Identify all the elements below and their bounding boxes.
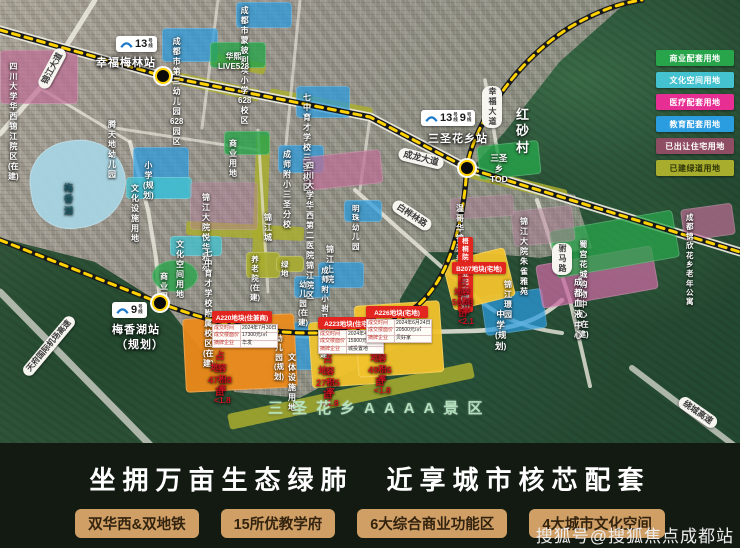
card-a226-row: 摘牌企业贝好家 — [367, 335, 432, 343]
card-b207: B207地块(宅地) — [452, 262, 506, 274]
card-a226-row: 贝好家 — [395, 335, 432, 343]
no3-kindergarten-628: 成都市第三幼儿园 628园区 — [170, 37, 183, 147]
card-a220-row: 摘牌企业华发 — [213, 340, 278, 348]
road-xingfu-avenue: 幸福大道 — [482, 86, 502, 128]
station-sanshenghuaxiang-line-number: 9号线 — [460, 112, 472, 124]
station-sanshenghuaxiang-line-number: 号线 — [467, 113, 472, 122]
card-a220-header: A220地块(住兼商) — [212, 311, 272, 323]
station-xingfumeilin-name: 幸福梅林站 — [96, 54, 156, 70]
station-meixianghu-line-number: 号线 — [138, 305, 143, 314]
station-xingfumeilin-line-badge: 13号线 — [116, 36, 157, 52]
promo-map-image: 四川大学华西 锦江院区(在建)成都市第三幼儿园 628园区成都市蒙彼利埃小学 6… — [0, 0, 740, 548]
chengshifuxiao-sansheng: 成师附小 三圣分校 — [283, 150, 291, 230]
station-xingfumeilin-line-number: 号线 — [148, 39, 153, 48]
a220-far-text: 容积率<1.8 — [214, 363, 231, 406]
card-a226-row: 成交楼面价20500元/㎡ — [367, 327, 432, 335]
card-a220-row: 摘牌企业 — [213, 340, 241, 348]
station-sanshenghuaxiang-line-number: 号线 — [453, 113, 458, 122]
card-a220-row: 成交楼面价17300元/㎡ — [213, 332, 278, 340]
station-meixianghu-name: 梅香湖站 — [112, 321, 160, 337]
card-a223-row: 城投置地 — [347, 346, 384, 354]
station-xingfumeilin-line-number: 13 — [135, 38, 147, 50]
station-sanshenghuaxiang-line-badge: 13号线9号线 — [421, 110, 475, 126]
jinxin-elderly-apartment: 成都锦欣花乡 老年公寓 — [686, 213, 694, 307]
station-sanshenghuaxiang-line-number: 13 — [440, 112, 452, 124]
huaxi-live528: 华熙LIVE528 — [218, 52, 249, 72]
jinjiang-city: 锦江城 — [264, 213, 272, 243]
metro-logo-icon — [120, 39, 133, 49]
jinjiang-dayuan-zhuque: 锦江大院 朱雀雅苑 — [520, 217, 528, 297]
a226-far-text: 容积率<1.8 — [374, 353, 391, 396]
card-a220: A220地块(住兼商)成交时间2024年7月30日成交楼面价17300元/㎡摘牌… — [212, 311, 272, 348]
scenic-area-watermark: 三圣花乡AAAA景区 — [268, 397, 491, 418]
middle-school-planned: 中学(规划) — [495, 309, 506, 352]
green-space: 绿地 — [281, 260, 289, 279]
sohu-watermark: 搜狐号@搜狐焦点成都站 — [536, 522, 734, 547]
culture-space-land: 文化空间用地 — [176, 240, 184, 300]
map-legend: 商业配套用地文化空间用地医疗配套用地教育配套用地已出让住宅用地已建绿道用地 — [654, 50, 736, 182]
station-meixianghu-line-badge: 9号线 — [112, 302, 147, 318]
cultural-facility-land: 文化设施用地 — [131, 184, 139, 244]
station-meixianghu-line-number: 9号线 — [131, 304, 143, 316]
station-sanshenghuaxiang-line-number: 13号线 — [440, 112, 458, 124]
kindergarten-inbuild: 幼儿园 (在建) — [298, 280, 308, 327]
station-meixianghu-note: （规划） — [116, 336, 164, 352]
legend-item: 教育配套用地 — [656, 116, 734, 132]
card-a226-table: 成交时间2024年6月24日成交楼面价20500元/㎡摘牌企业贝好家 — [366, 319, 432, 343]
legend-item: 商业配套用地 — [656, 50, 734, 66]
station-sanshenghuaxiang-line-number: 9 — [460, 112, 466, 124]
card-a220-row: 华发 — [241, 340, 278, 348]
card-a226-row: 摘牌企业 — [367, 335, 395, 343]
metro-logo-icon — [425, 113, 438, 123]
meixiang-lake-label: 梅香湖 — [64, 183, 73, 217]
business-land-north: 商业用地 — [229, 139, 237, 179]
station-sanshenghuaxiang-name: 三圣花乡站 — [428, 130, 488, 146]
card-a226-header: A226地块(宅地) — [366, 306, 428, 318]
card-a223-row: 成交楼面价 — [319, 338, 347, 346]
mingzhu-kindergarten: 明珠 幼儿园 — [352, 204, 360, 251]
station-meixianghu-dot — [152, 295, 168, 311]
tengtiandi-kindergarten: 腾天地幼儿园 — [108, 120, 116, 180]
station-xingfumeilin-line-number: 13号线 — [135, 38, 153, 50]
b207-far-text: 容积率<2.1 — [458, 287, 474, 327]
feature-badge: 双华西&双地铁 — [75, 509, 198, 538]
station-meixianghu-line-number: 9 — [131, 304, 137, 316]
legend-item: 已出让住宅用地 — [656, 138, 734, 154]
feature-badge: 15所优教学府 — [221, 509, 336, 538]
primary-school-planned: 小学(规划) — [143, 161, 154, 201]
card-a220-row: 成交楼面价 — [213, 332, 241, 340]
card-a220-table: 成交时间2024年7月30日成交楼面价17300元/㎡摘牌企业华发 — [212, 324, 278, 348]
metro-logo-icon — [116, 305, 129, 315]
station-sanshenghuaxiang-dot — [459, 160, 475, 176]
feature-badge: 6大综合商业功能区 — [357, 509, 507, 538]
card-a226: A226地块(宅地)成交时间2024年6月24日成交楼面价20500元/㎡摘牌企… — [366, 306, 428, 343]
slogan-text: 坐拥万亩生态绿肺 近享城市核芯配套 — [0, 460, 740, 497]
card-a223-row: 摘牌企业城投置地 — [319, 346, 384, 354]
road-fuma: 驸马路 — [552, 243, 572, 275]
legend-item: 文化空间用地 — [656, 72, 734, 88]
chengdu-blood-center: 成都血液中心 — [574, 277, 583, 341]
card-b207-header: B207地块(宅地) — [452, 262, 506, 274]
legend-item: 医疗配套用地 — [656, 94, 734, 110]
legend-item: 已建绿道用地 — [656, 160, 734, 176]
satellite-map: 四川大学华西 锦江院区(在建)成都市第三幼儿园 628园区成都市蒙彼利埃小学 6… — [0, 0, 740, 443]
huaxi-jinjiang-hospital: 四川大学华西 锦江院区(在建) — [8, 62, 19, 182]
station-xingfumeilin-dot — [155, 68, 171, 84]
hongsha-village: 红 砂 村 — [516, 107, 533, 156]
sanshengxiang-tod: 三圣乡TOD — [490, 153, 508, 185]
card-a226-row: 20500元/㎡ — [395, 327, 432, 335]
card-a220-row: 17300元/㎡ — [241, 332, 278, 340]
card-a223-row: 摘牌企业 — [319, 346, 347, 354]
card-a226-row: 成交楼面价 — [367, 327, 395, 335]
nursing-home-inbuild: 养老院 (在建) — [250, 255, 260, 302]
